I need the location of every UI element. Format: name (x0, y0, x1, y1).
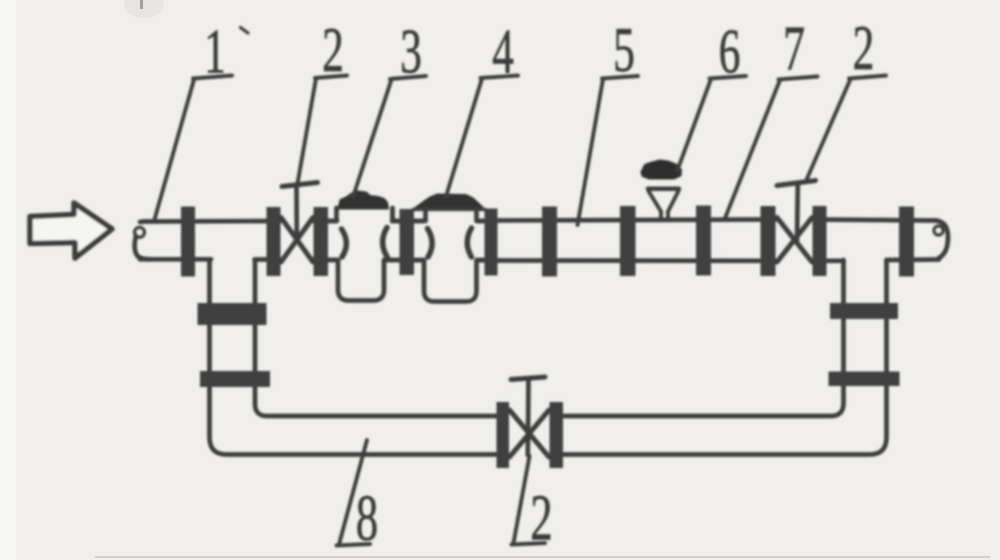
svg-text:2: 2 (530, 482, 552, 555)
svg-text:4: 4 (492, 15, 514, 86)
svg-text:6: 6 (719, 15, 741, 86)
svg-text:7: 7 (783, 12, 805, 83)
svg-text:2: 2 (322, 14, 344, 85)
svg-text:8: 8 (356, 483, 378, 556)
svg-text:5: 5 (613, 14, 635, 85)
svg-text:3: 3 (400, 15, 422, 86)
svg-text:1: 1 (204, 15, 226, 86)
svg-text:2: 2 (853, 12, 875, 83)
